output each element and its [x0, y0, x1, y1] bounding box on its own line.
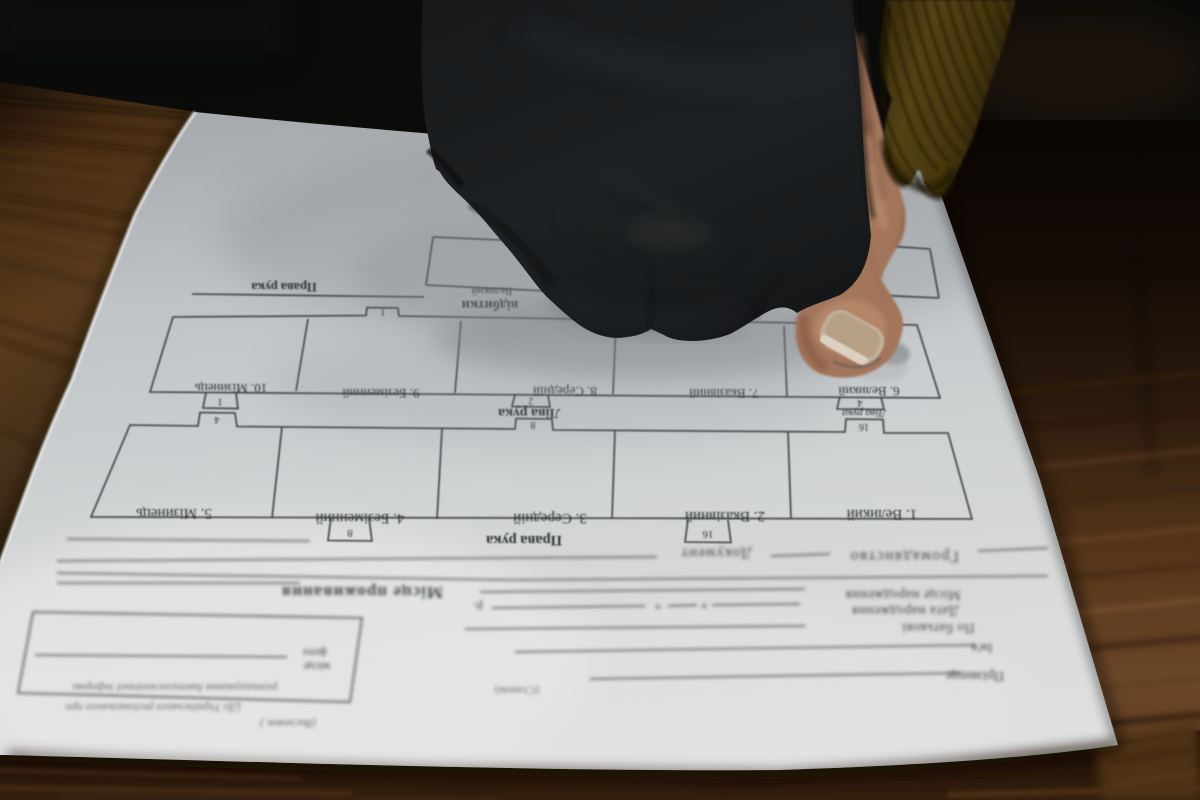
svg-text:2. Вказівний: 2. Вказівний [685, 508, 765, 524]
svg-text:р.: р. [473, 600, 483, 615]
svg-text:Місце проживання: Місце проживання [281, 583, 443, 602]
svg-text:10. Мізинець: 10. Мізинець [195, 381, 267, 396]
svg-text:1. Великий: 1. Великий [847, 506, 918, 522]
svg-text:Документ: Документ [681, 545, 752, 561]
svg-text:Права рука: Права рука [251, 280, 317, 294]
svg-text:(До Українського регіонального: (До Українського регіонального про [65, 701, 240, 713]
svg-text:(Станом): (Станом) [495, 684, 540, 696]
svg-text:(Висновок ): (Висновок ) [260, 717, 316, 729]
svg-text:5. Мізинець: 5. Мізинець [136, 505, 212, 521]
svg-text:1: 1 [218, 396, 223, 407]
svg-text:фото: фото [303, 646, 327, 658]
svg-text:3. Середній: 3. Середній [513, 510, 587, 526]
svg-text:Ліва рука: Ліва рука [841, 407, 887, 419]
svg-text:»: » [701, 600, 708, 615]
svg-text:4. Безіменний: 4. Безіменний [316, 510, 405, 526]
svg-text:Місце народження: Місце народження [845, 588, 960, 603]
svg-text:розташування дактилоскопічної: розташування дактилоскопічної інформа [72, 681, 278, 693]
svg-text:«: « [655, 601, 662, 616]
svg-text:16: 16 [859, 421, 869, 432]
svg-text:Прізвище: Прізвище [946, 668, 1004, 683]
svg-text:Ім'я: Ім'я [972, 641, 993, 656]
svg-text:По батькові: По батькові [902, 621, 975, 636]
svg-text:16: 16 [702, 528, 714, 540]
svg-text:Дата народження: Дата народження [852, 604, 959, 619]
svg-text:Громадянство: Громадянство [849, 548, 959, 565]
svg-text:місце: місце [304, 660, 331, 672]
svg-text:Права рука: Права рука [485, 532, 562, 548]
svg-text:8: 8 [347, 527, 353, 539]
svg-text:4: 4 [215, 414, 220, 425]
svg-text:4: 4 [858, 397, 863, 408]
